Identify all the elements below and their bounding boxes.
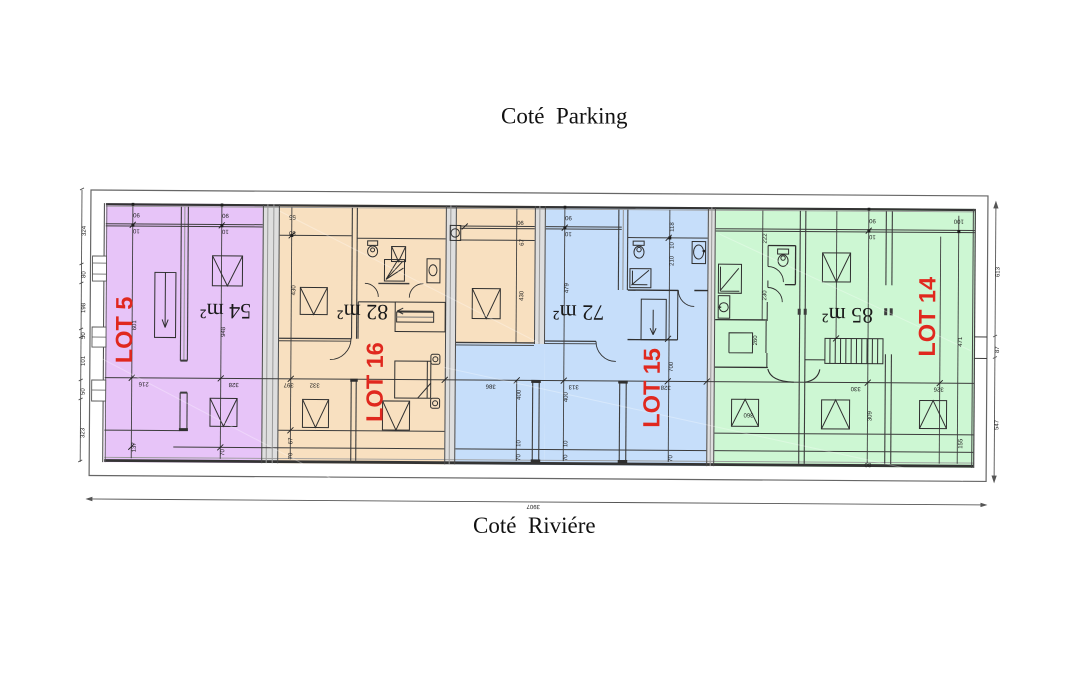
svg-text:3907: 3907: [526, 503, 540, 509]
svg-text:80: 80: [864, 461, 871, 467]
svg-text:101: 101: [81, 355, 87, 366]
svg-text:10: 10: [221, 228, 228, 234]
svg-text:70: 70: [668, 454, 674, 461]
svg-text:700: 700: [669, 361, 675, 372]
svg-text:198: 198: [81, 302, 87, 313]
svg-text:70: 70: [288, 452, 294, 459]
svg-text:547: 547: [994, 419, 1000, 430]
svg-text:222: 222: [763, 233, 769, 244]
svg-text:55: 55: [288, 213, 295, 219]
svg-text:216: 216: [138, 380, 149, 386]
svg-text:72 m²: 72 m²: [553, 300, 605, 325]
svg-text:50: 50: [81, 332, 87, 339]
svg-text:10: 10: [670, 242, 676, 249]
svg-text:155: 155: [958, 438, 964, 449]
svg-text:313: 313: [568, 383, 579, 389]
svg-text:948: 948: [221, 326, 227, 337]
svg-text:330: 330: [850, 385, 861, 391]
svg-text:70: 70: [220, 449, 226, 456]
svg-text:332: 332: [309, 381, 320, 387]
svg-text:324: 324: [82, 225, 88, 236]
svg-text:90: 90: [516, 219, 523, 225]
svg-text:90: 90: [868, 217, 875, 223]
svg-text:80: 80: [81, 271, 87, 278]
svg-text:90: 90: [132, 211, 139, 217]
svg-text:400: 400: [564, 391, 570, 402]
svg-text:400: 400: [517, 389, 523, 400]
svg-text:230: 230: [762, 290, 768, 301]
svg-text:90: 90: [564, 214, 571, 220]
svg-text:LOT 14: LOT 14: [914, 277, 941, 357]
svg-text:118: 118: [670, 222, 676, 232]
svg-text:Coté Parking: Coté Parking: [501, 104, 628, 129]
svg-text:10: 10: [132, 227, 139, 233]
svg-text:613: 613: [995, 266, 1001, 277]
svg-text:90: 90: [221, 212, 228, 218]
svg-text:601: 601: [132, 320, 138, 331]
svg-text:10: 10: [868, 233, 875, 239]
svg-text:471: 471: [958, 336, 964, 347]
svg-text:397: 397: [283, 381, 294, 387]
svg-text:328: 328: [228, 381, 239, 387]
svg-text:430: 430: [291, 285, 297, 296]
svg-text:430: 430: [519, 290, 525, 301]
svg-text:260: 260: [753, 335, 759, 346]
svg-text:137: 137: [132, 442, 138, 453]
svg-text:85 m²: 85 m²: [821, 303, 873, 328]
svg-text:323: 323: [80, 427, 86, 438]
svg-text:50: 50: [81, 388, 87, 395]
svg-text:210: 210: [670, 255, 676, 266]
svg-text:LOT 16: LOT 16: [361, 342, 388, 422]
svg-text:100: 100: [953, 218, 964, 224]
svg-text:360: 360: [743, 411, 754, 417]
svg-text:326: 326: [933, 386, 944, 392]
svg-text:54 m²: 54 m²: [200, 299, 252, 324]
svg-text:386: 386: [485, 383, 496, 389]
svg-text:Coté Riviére: Coté Riviére: [473, 513, 596, 538]
svg-text:479: 479: [564, 282, 570, 293]
svg-text:80: 80: [288, 229, 295, 235]
svg-text:67: 67: [520, 239, 526, 246]
svg-text:70: 70: [563, 454, 569, 461]
svg-text:10: 10: [516, 439, 522, 446]
svg-text:70: 70: [516, 453, 522, 460]
svg-text:10: 10: [564, 230, 571, 236]
svg-text:328: 328: [660, 384, 671, 390]
svg-text:87: 87: [995, 346, 1001, 353]
svg-text:309: 309: [867, 410, 873, 421]
svg-text:67: 67: [288, 437, 294, 444]
svg-text:10: 10: [563, 440, 569, 447]
svg-text:82 m²: 82 m²: [337, 300, 389, 325]
